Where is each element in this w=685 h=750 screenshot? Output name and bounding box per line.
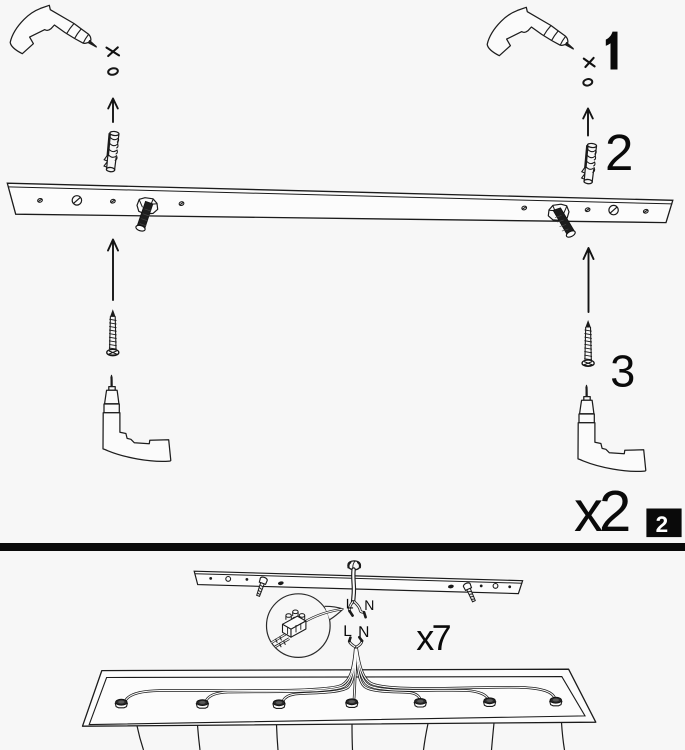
svg-text:2: 2 — [656, 512, 669, 537]
svg-text:7: 7 — [432, 617, 452, 658]
svg-text:3: 3 — [610, 346, 635, 397]
svg-text:L: L — [346, 596, 354, 612]
svg-text:2: 2 — [599, 479, 631, 544]
svg-text:N: N — [364, 597, 374, 613]
svg-text:2: 2 — [605, 124, 633, 181]
